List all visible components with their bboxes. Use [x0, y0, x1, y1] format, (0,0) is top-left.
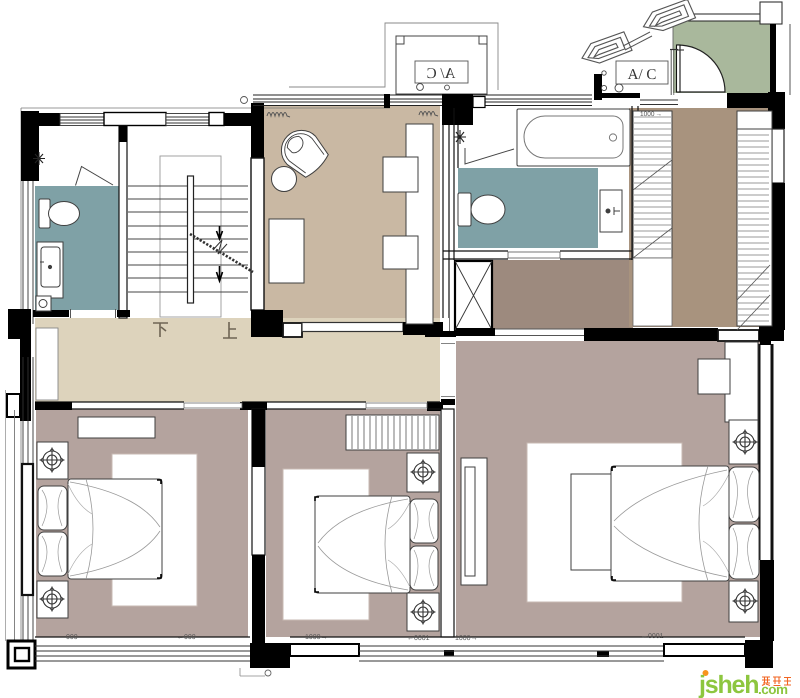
- svg-text:1000→: 1000→: [305, 634, 328, 641]
- svg-text:000: 000: [66, 634, 78, 641]
- svg-text:←0001: ←0001: [407, 635, 430, 642]
- svg-text:1000→: 1000→: [640, 111, 662, 118]
- svg-text:A/ C: A/ C: [427, 66, 456, 82]
- svg-text:←000: ←000: [177, 634, 196, 641]
- svg-text:jsheh: jsheh: [698, 671, 758, 698]
- svg-text:1000→: 1000→: [455, 635, 478, 642]
- svg-text:←0001: ←0001: [641, 633, 664, 640]
- svg-text:A/ C: A/ C: [628, 67, 657, 83]
- svg-text:.com: .com: [758, 682, 788, 697]
